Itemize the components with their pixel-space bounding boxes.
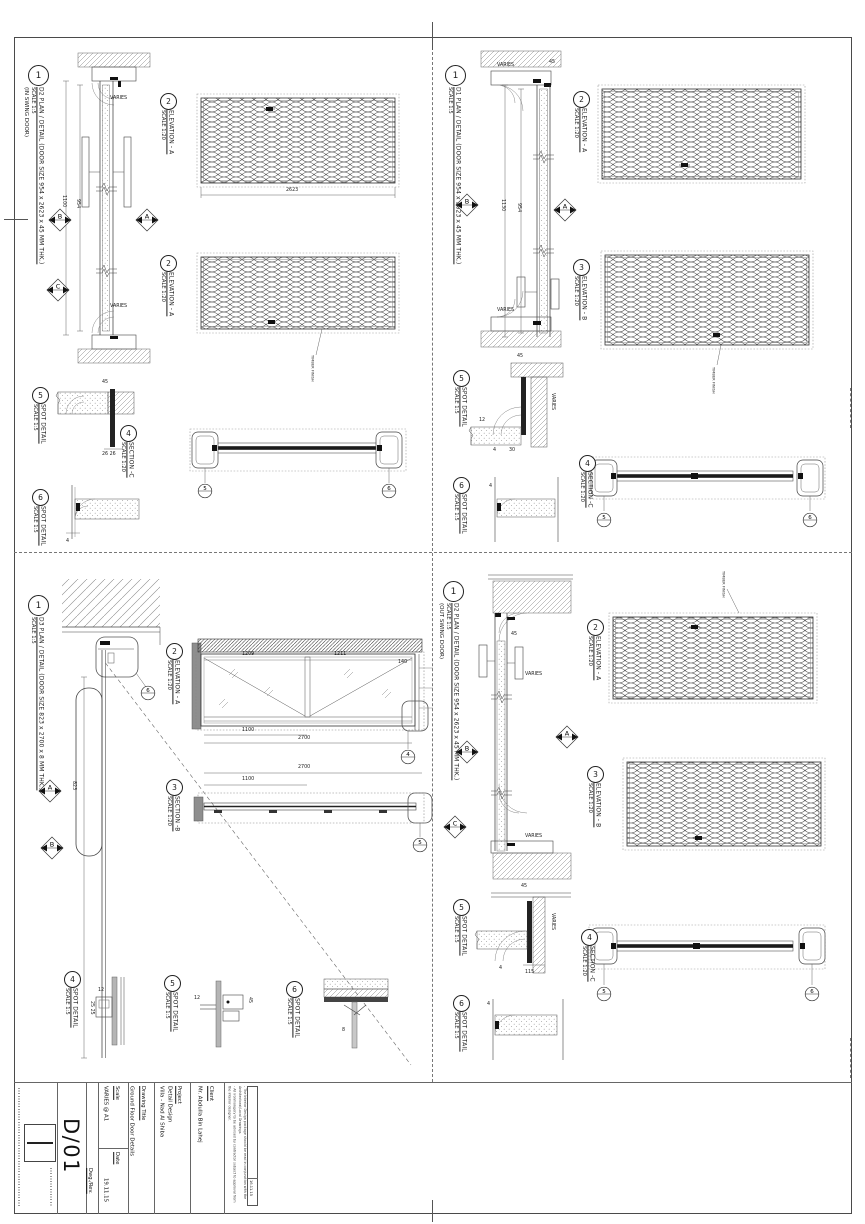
svg-text:6: 6 [810, 989, 814, 995]
qbr-spot-5 [475, 893, 571, 973]
qtr-linework [433, 37, 853, 553]
plan-scale: SCALE 1:5 [30, 617, 37, 790]
callout-number: 4 [579, 455, 596, 472]
qbl-plan-callout: 1 D3 PLAN / DETAIL (DOOR SIZE 823 x 2700… [28, 595, 49, 616]
dim-label: 12 [194, 997, 200, 1002]
view-title: SECTION -C [588, 946, 596, 982]
qbl-spot4-callout: 4 SPOT DETAIL SCALE 1:5 [64, 971, 81, 988]
svg-text:6: 6 [146, 688, 150, 694]
view-scale: SCALE 1:20 [160, 272, 167, 316]
callout-number: 1 [443, 581, 464, 602]
detail-bubble-left: 5 [596, 512, 612, 528]
detail-bubble-head: 6 [140, 685, 156, 701]
section-marker-c: C [442, 814, 468, 840]
plan-scale: SCALE 1:5 [30, 87, 37, 264]
view-scale: SCALE 1:5 [32, 506, 39, 546]
plan-title: D3 PLAN / DETAIL (DOOR SIZE 823 x 2700 x… [37, 617, 45, 790]
svg-text:6: 6 [808, 515, 812, 521]
callout-number: 5 [32, 387, 49, 404]
plan-scale: SCALE 1:5 [445, 603, 452, 780]
svg-text:B: B [50, 841, 54, 849]
dim-label: 1100 [60, 195, 65, 207]
dim-label: VARIES [497, 64, 514, 69]
dim-label: 4 [499, 967, 502, 972]
qtr-section-callout: 4 SECTION -C SCALE 1:20 [579, 455, 596, 472]
view-scale: SCALE 1:20 [579, 472, 586, 508]
dim-label: 45 [511, 633, 517, 638]
qtr-plan-callout: 1 D1 PLAN / DETAIL (DOOR SIZE 954 x 2623… [445, 65, 466, 86]
view-title: SPOT DETAIL [460, 494, 468, 534]
callout-number: 6 [453, 995, 470, 1012]
quadrant-bottom-right: 1 D2 PLAN / DETAIL (DOOR SIZE 954 x 2623… [433, 553, 853, 1082]
view-scale: SCALE 1:5 [286, 998, 293, 1038]
qtr-elev2-callout: 3 ELEVATION - B SCALE 1:20 [573, 259, 590, 276]
svg-text:C: C [453, 820, 458, 828]
callout-number: 2 [160, 93, 177, 110]
qtl-section-c [190, 429, 406, 483]
view-title: SECTION -C [586, 472, 594, 508]
qtl-spot-6 [66, 485, 139, 539]
dim-label: 2700 [298, 766, 310, 771]
qtr-elevation-2-panel [601, 251, 813, 365]
finish-label: TIMBER FINISH [711, 367, 716, 394]
qtr-spot-6 [495, 477, 558, 542]
view-title: ELEVATION - A [167, 110, 175, 154]
view-title: SPOT DETAIL [71, 988, 79, 1028]
view-scale: SCALE 1:5 [64, 988, 71, 1028]
view-scale: SCALE 1:20 [166, 660, 173, 704]
view-title: SECTION -B [173, 796, 181, 831]
dim-label: 26 26 [102, 453, 116, 458]
qbl-spot5-callout: 5 SPOT DETAIL SCALE 1:5 [164, 975, 181, 992]
view-scale: SCALE 1:5 [164, 992, 171, 1032]
qtr-spot6-callout: 6 SPOT DETAIL SCALE 1:5 [453, 477, 470, 494]
callout-number: 2 [587, 619, 604, 636]
dim-label: 45 [517, 355, 523, 360]
plan-subtitle: (OUT SWING DOOR) [437, 603, 444, 780]
dim-label: 4 [487, 1003, 490, 1008]
section-marker-a: A [552, 197, 578, 223]
qbl-elev-callout: 2 ELEVATION - A SCALE 1:20 [166, 643, 183, 660]
dim-label: 1130 [499, 199, 504, 211]
qbr-spot5-callout: 5 SPOT DETAIL SCALE 1:5 [453, 899, 470, 916]
qbl-spot-6 [324, 979, 388, 1048]
callout-number: 5 [453, 899, 470, 916]
dim-label: 2700 [298, 737, 310, 742]
view-scale: SCALE 1:20 [587, 636, 594, 680]
dim-label: 1209 [242, 653, 254, 658]
detail-bubble-right: 6 [804, 986, 820, 1002]
view-title: SPOT DETAIL [39, 506, 47, 546]
dim-label: VARIES [525, 835, 542, 840]
detail-bubble-left: 5 [197, 483, 213, 499]
callout-number: 3 [573, 259, 590, 276]
callout-number: 6 [286, 981, 303, 998]
qbr-section-c [589, 925, 825, 985]
callout-label: D2 PLAN / DETAIL (DOOR SIZE 954 x 2623 x… [22, 87, 45, 264]
qtl-plan-callout: 1 D2 PLAN / DETAIL (DOOR SIZE 954 x 2623… [28, 65, 49, 86]
view-title: ELEVATION - B [580, 276, 588, 320]
callout-number: 4 [581, 929, 598, 946]
callout-number: 2 [573, 91, 590, 108]
dim-label: 1100 [242, 778, 254, 783]
svg-text:5: 5 [203, 486, 207, 492]
dim-label: 45 [549, 61, 555, 66]
qbl-plan-head-detail [96, 637, 146, 687]
dim-label: 1211 [334, 653, 346, 658]
qbl-section-callout: 3 SECTION -B SCALE 1:20 [166, 779, 183, 796]
section-marker-b: B [39, 835, 65, 861]
qtr-section-c [589, 457, 825, 511]
dim-label: 45 [246, 997, 251, 1003]
view-title: ELEVATION - A [594, 636, 602, 680]
qtl-plan-door-leaf [82, 81, 131, 335]
qbr-plan-callout: 1 D2 PLAN / DETAIL (DOOR SIZE 954 x 2623… [443, 581, 464, 602]
dim-label: 823 [70, 781, 75, 790]
qtl-spot6-callout: 6 SPOT DETAIL SCALE 1:5 [32, 489, 49, 506]
plan-subtitle: (IN SWING DOOR) [22, 87, 29, 264]
callout-number: 2 [166, 643, 183, 660]
view-scale: SCALE 1:20 [120, 442, 127, 478]
detail-bubble-left: 5 [596, 986, 612, 1002]
plan-title: D1 PLAN / DETAIL (DOOR SIZE 954 x 2623 x… [454, 87, 462, 264]
centerline-tick-bottom [432, 1200, 433, 1222]
dim-label: 12 [98, 989, 104, 994]
qbr-section-callout: 4 SECTION -C SCALE 1:20 [581, 929, 598, 946]
callout-number: 2 [160, 255, 177, 272]
dim-label: VARIES [110, 97, 127, 102]
view-scale: SCALE 1:5 [453, 916, 460, 956]
section-marker-b: B [47, 207, 73, 233]
qtl-plan-bottom-jamb [78, 311, 150, 363]
view-scale: SCALE 1:20 [587, 783, 594, 827]
dim-label: VARIES [549, 913, 554, 930]
view-scale: SCALE 1:5 [32, 404, 39, 444]
svg-text:5: 5 [418, 840, 422, 846]
dim-label: 4 [66, 540, 69, 545]
drawing-sheet-page: { "sheet": { "qtl": { "plan": {"num":"1"… [0, 0, 865, 1224]
qtr-elev1-callout: 2 ELEVATION - A SCALE 1:20 [573, 91, 590, 108]
callout-number: 1 [28, 65, 49, 86]
qbr-elevation-1-panel [609, 613, 817, 703]
view-title: ELEVATION - A [167, 272, 175, 316]
finish-label: TIMBER FINISH [310, 355, 315, 382]
qbr-elev1-callout: 2 ELEVATION - A SCALE 1:20 [587, 619, 604, 636]
view-scale: SCALE 1:5 [453, 387, 460, 427]
qbr-finish-leader [727, 589, 739, 613]
svg-text:C: C [56, 283, 61, 291]
view-title: SPOT DETAIL [293, 998, 301, 1038]
svg-text:6: 6 [387, 486, 391, 492]
dim-label: 1100 [242, 729, 254, 734]
dim-label: 4 [489, 485, 492, 490]
svg-text:B: B [58, 213, 62, 221]
callout-number: 4 [64, 971, 81, 988]
qbr-plan-top-jamb [488, 575, 573, 641]
dim-label: 8 [342, 1029, 345, 1034]
dim-label: 954 [515, 203, 520, 212]
qtl-linework [14, 37, 433, 553]
qbr-spot6-callout: 6 SPOT DETAIL SCALE 1:5 [453, 995, 470, 1012]
dim-label: 954 [74, 199, 79, 208]
qtl-elev1-callout: 2 ELEVATION - A SCALE 1:20 [160, 93, 177, 110]
qtl-elev2-callout: 2 ELEVATION - A SCALE 1:20 [160, 255, 177, 272]
plan-title: D2 PLAN / DETAIL (DOOR SIZE 954 x 2623 x… [37, 87, 45, 264]
view-title: SECTION -C [127, 442, 135, 478]
callout-number: 4 [120, 425, 137, 442]
view-scale: SCALE 1:20 [160, 110, 167, 154]
detail-bubble-right: 6 [802, 512, 818, 528]
qtr-elevation-1-panel [598, 85, 805, 183]
dim-label: VARIES [525, 673, 542, 678]
view-title: SPOT DETAIL [460, 916, 468, 956]
qbl-elevation-a [192, 639, 433, 749]
section-marker-c: C [45, 277, 71, 303]
callout-number: 6 [32, 489, 49, 506]
view-scale: SCALE 1:20 [166, 796, 173, 831]
section-marker-b: B [454, 739, 480, 765]
view-scale: SCALE 1:5 [453, 1012, 460, 1052]
svg-text:A: A [48, 784, 53, 792]
dim-label: VARIES [549, 393, 554, 410]
dim-label: 45 [102, 381, 108, 386]
view-title: ELEVATION - A [580, 108, 588, 152]
view-title: SPOT DETAIL [171, 992, 179, 1032]
callout-number: 1 [445, 65, 466, 86]
view-title: ELEVATION - A [173, 660, 181, 704]
qtl-elevation-2-panel [197, 253, 399, 355]
dim-label: 2623 [286, 189, 298, 194]
qbl-spot-5 [200, 981, 243, 1047]
svg-text:B: B [465, 198, 469, 206]
view-scale: SCALE 1:20 [581, 946, 588, 982]
view-title: ELEVATION - B [594, 783, 602, 827]
dim-label: 45 [521, 885, 527, 890]
callout-number: 1 [28, 595, 49, 616]
dim-label: 25 25 [88, 1001, 93, 1015]
callout-number: 3 [166, 779, 183, 796]
quadrant-bottom-left: 1 D3 PLAN / DETAIL (DOOR SIZE 823 x 2700… [14, 553, 433, 1082]
detail-bubble-right: 6 [381, 483, 397, 499]
qbr-elev2-callout: 3 ELEVATION - B SCALE 1:20 [587, 766, 604, 783]
section-marker-a: A [37, 778, 63, 804]
dim-label: 30 [509, 449, 515, 454]
svg-text:5: 5 [602, 515, 606, 521]
qbl-section-b [194, 773, 432, 837]
quadrant-top-right: 1 D1 PLAN / DETAIL (DOOR SIZE 954 x 2623… [433, 37, 853, 553]
qbr-spot-6 [493, 999, 563, 1060]
finish-label: TIMBER FINISH [721, 571, 726, 598]
dim-label: VARIES [497, 309, 514, 314]
qtl-elevation-1-panel [197, 94, 399, 198]
quadrant-top-left: 1 D2 PLAN / DETAIL (DOOR SIZE 954 x 2623… [14, 37, 433, 553]
svg-text:A: A [145, 213, 150, 221]
dim-label: 12 [479, 419, 485, 424]
qtl-section-callout: 4 SECTION -C SCALE 1:20 [120, 425, 137, 442]
callout-number: 6 [453, 477, 470, 494]
view-scale: SCALE 1:20 [573, 276, 580, 320]
svg-text:A: A [563, 203, 568, 211]
dim-label: VARIES [110, 305, 127, 310]
section-marker-a: A [554, 724, 580, 750]
detail-bubble-elev: 4 [400, 749, 416, 765]
qtl-spot5-callout: 5 SPOT DETAIL SCALE 1:5 [32, 387, 49, 404]
view-title: SPOT DETAIL [39, 404, 47, 444]
plan-scale: SCALE 1:5 [447, 87, 454, 264]
qbr-plan-door-leaf [479, 613, 523, 851]
qbl-plan-ceiling [62, 579, 160, 645]
qbr-linework [433, 553, 853, 1082]
callout-number: 3 [587, 766, 604, 783]
view-scale: SCALE 1:5 [453, 494, 460, 534]
callout-number: 5 [453, 370, 470, 387]
qbr-elevation-2-panel [623, 758, 825, 850]
qtr-spot5-callout: 5 SPOT DETAIL SCALE 1:5 [453, 370, 470, 387]
qbl-spot6-callout: 6 SPOT DETAIL SCALE 1:5 [286, 981, 303, 998]
callout-number: 5 [164, 975, 181, 992]
dim-label: 4 [493, 449, 496, 454]
view-title: SPOT DETAIL [460, 387, 468, 427]
svg-text:B: B [465, 745, 469, 753]
svg-text:5: 5 [602, 989, 606, 995]
section-marker-a: A [134, 207, 160, 233]
detail-bubble-section: 5 [412, 837, 428, 853]
view-title: SPOT DETAIL [460, 1012, 468, 1052]
dim-label: 140 [398, 661, 407, 666]
svg-text:A: A [565, 730, 570, 738]
dim-label: 115 [525, 971, 534, 976]
svg-text:4: 4 [406, 752, 410, 758]
section-marker-b: B [454, 192, 480, 218]
view-scale: SCALE 1:20 [573, 108, 580, 152]
